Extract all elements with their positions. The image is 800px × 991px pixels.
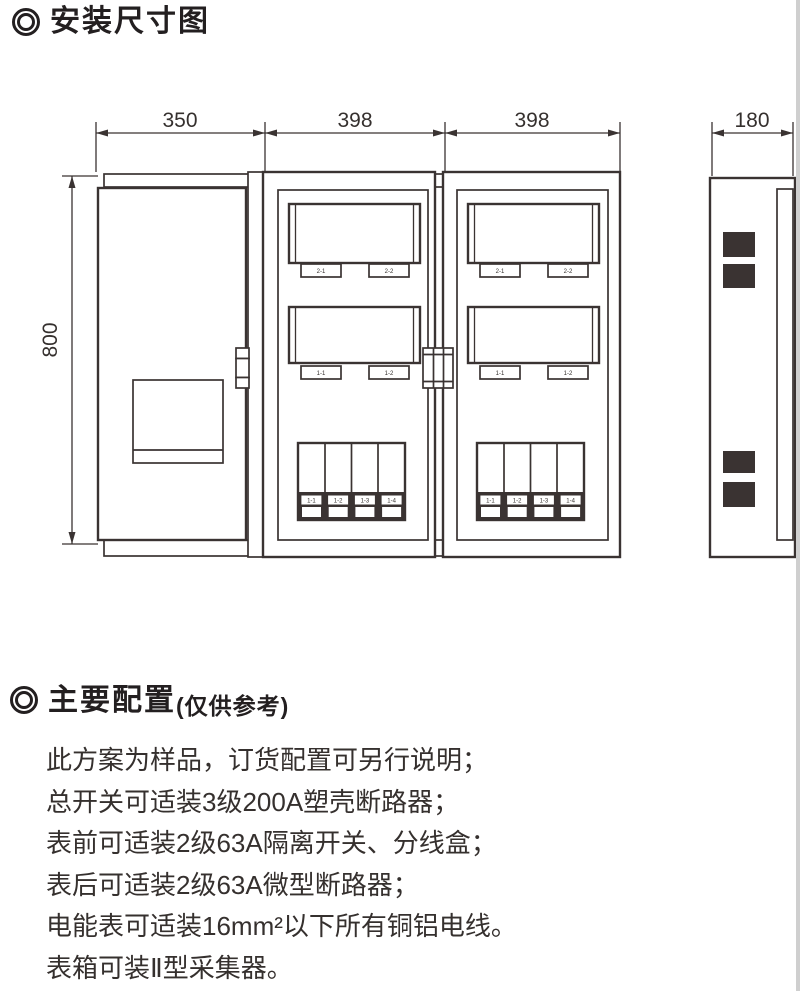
side-view [710, 178, 795, 557]
breaker-bank: 1-1 1-2 1-3 1-4 [298, 443, 405, 520]
door-latch-left [236, 348, 249, 388]
nameplate-label: 2-2 [385, 269, 394, 275]
dim-label-depth: 180 [734, 109, 769, 132]
note-line: 表箱可装Ⅱ型采集器。 [46, 948, 746, 990]
breaker-label: 1-4 [387, 499, 396, 505]
installation-dimension-diagram: 350 398 398 180 800 2-1 [0, 0, 800, 620]
dim-label-width-mid: 398 [337, 109, 372, 132]
nameplate-label: 2-2 [564, 269, 573, 275]
scan-edge-artifact [796, 0, 800, 991]
breaker-label: 1-2 [334, 499, 343, 505]
dim-label-height: 800 [39, 322, 62, 357]
dim-label-width-right: 398 [514, 109, 549, 132]
note-line: 此方案为样品，订货配置可另行说明； [46, 740, 746, 782]
nameplate-label: 2-1 [317, 269, 326, 275]
note-line: 表前可适装2级63A隔离开关、分线盒； [46, 823, 746, 865]
hinge-block [723, 264, 755, 288]
note-line: 电能表可适装16mm²以下所有铜铝电线。 [46, 906, 746, 948]
dim-label-width-left: 350 [162, 109, 197, 132]
breaker-bank: 1-1 1-2 1-3 1-4 [477, 443, 584, 520]
cabinet-post [248, 172, 263, 557]
hinge-block [723, 232, 755, 257]
breaker-label: 1-2 [513, 499, 522, 505]
front-view: 2-1 2-2 1-1 1-2 1-1 1-2 [98, 172, 620, 557]
breaker-label: 1-3 [540, 499, 549, 505]
breaker-label: 1-3 [361, 499, 370, 505]
hinge-block [723, 451, 755, 473]
nameplate-label: 1-1 [317, 371, 326, 377]
config-section-title: 主要配置 [48, 684, 176, 717]
configuration-notes: 此方案为样品，订货配置可另行说明； 总开关可适装3级200A塑壳断路器； 表前可… [46, 740, 746, 989]
note-line: 总开关可适装3级200A塑壳断路器； [46, 782, 746, 824]
breaker-label: 1-1 [307, 499, 316, 505]
left-door [98, 188, 246, 540]
door-latch-center [423, 348, 453, 388]
breaker-label: 1-1 [486, 499, 495, 505]
note-line: 表后可适装2级63A微型断路器； [46, 865, 746, 907]
nameplate-label: 2-1 [496, 269, 505, 275]
config-section-subtitle: (仅供参考) [176, 693, 289, 719]
section-header-config: 主要配置(仅供参考) [10, 683, 289, 719]
nameplate-label: 1-2 [385, 371, 394, 377]
double-circle-icon [10, 686, 38, 714]
hinge-block [723, 482, 755, 507]
nameplate-label: 1-1 [496, 371, 505, 377]
breaker-label: 1-4 [566, 499, 575, 505]
nameplate-label: 1-2 [564, 371, 573, 377]
